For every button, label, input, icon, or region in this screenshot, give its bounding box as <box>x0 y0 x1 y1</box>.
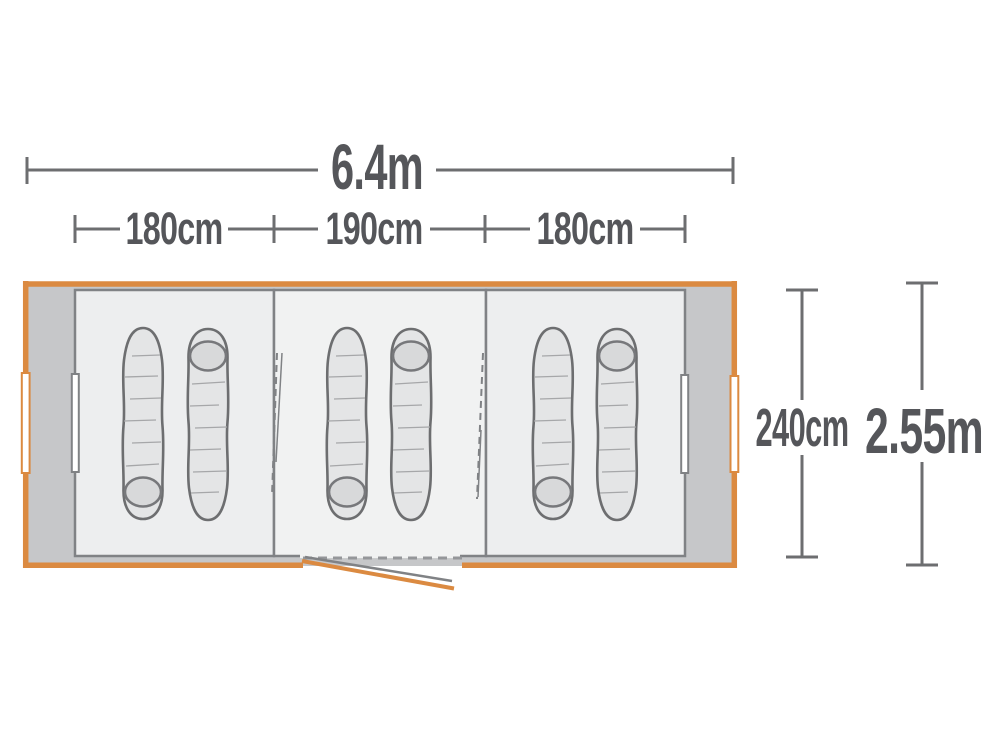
dimension-sections: 180cm 190cm 180cm <box>75 203 685 254</box>
door-strip-right-inner <box>681 375 688 473</box>
sleeping-bag-room3-right <box>597 329 638 520</box>
dimension-section-right-label: 180cm <box>537 203 634 254</box>
dimension-total-width-label: 6.4m <box>331 131 423 203</box>
dimension-section-middle-label: 190cm <box>326 203 423 254</box>
bedroom-left <box>75 290 274 556</box>
dimension-inner-depth-label: 240cm <box>756 398 849 458</box>
tent-floorplan-diagram: 6.4m 180cm 190cm 180cm <box>0 0 1000 739</box>
sleeping-bag-room2-right <box>391 329 432 520</box>
bedroom-middle <box>274 290 486 556</box>
tent-body <box>22 281 739 589</box>
door-strip-left-outer <box>22 373 30 473</box>
bedroom-right <box>486 290 685 556</box>
sleeping-bag-room1-left <box>123 328 164 519</box>
dimension-inner-depth: 240cm <box>756 290 849 557</box>
dimension-overall-depth-label: 2.55m <box>865 395 983 467</box>
sleeping-bag-room1-right <box>188 329 229 520</box>
dimension-section-left-label: 180cm <box>126 203 223 254</box>
sleeping-bag-room2-left <box>327 328 368 519</box>
door-strip-right-outer <box>731 376 739 472</box>
door-strip-left-inner <box>72 374 79 472</box>
sleeping-bag-room3-left <box>533 328 574 519</box>
dimension-total-width: 6.4m <box>27 131 733 203</box>
dimension-overall-depth: 2.55m <box>865 283 983 565</box>
